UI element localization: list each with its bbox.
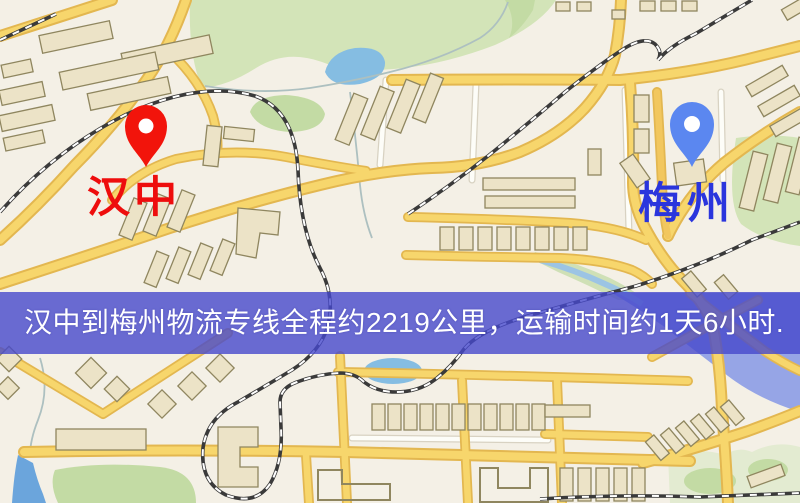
route-info-text: 汉中到梅州物流专线全程约2219公里，运输时间约1天6小时. — [24, 301, 784, 341]
destination-city-label: 梅州 — [638, 183, 736, 226]
origin-pin-icon[interactable] — [122, 105, 170, 167]
route-info-banner: 汉中到梅州物流专线全程约2219公里，运输时间约1天6小时. — [0, 292, 800, 354]
map-canvas[interactable] — [0, 0, 800, 503]
origin-city-label: 汉中 — [87, 177, 181, 220]
logistics-route-map: 汉中到梅州物流专线全程约2219公里，运输时间约1天6小时. 汉中 梅州 — [0, 0, 800, 503]
destination-pin-icon[interactable] — [667, 101, 717, 167]
